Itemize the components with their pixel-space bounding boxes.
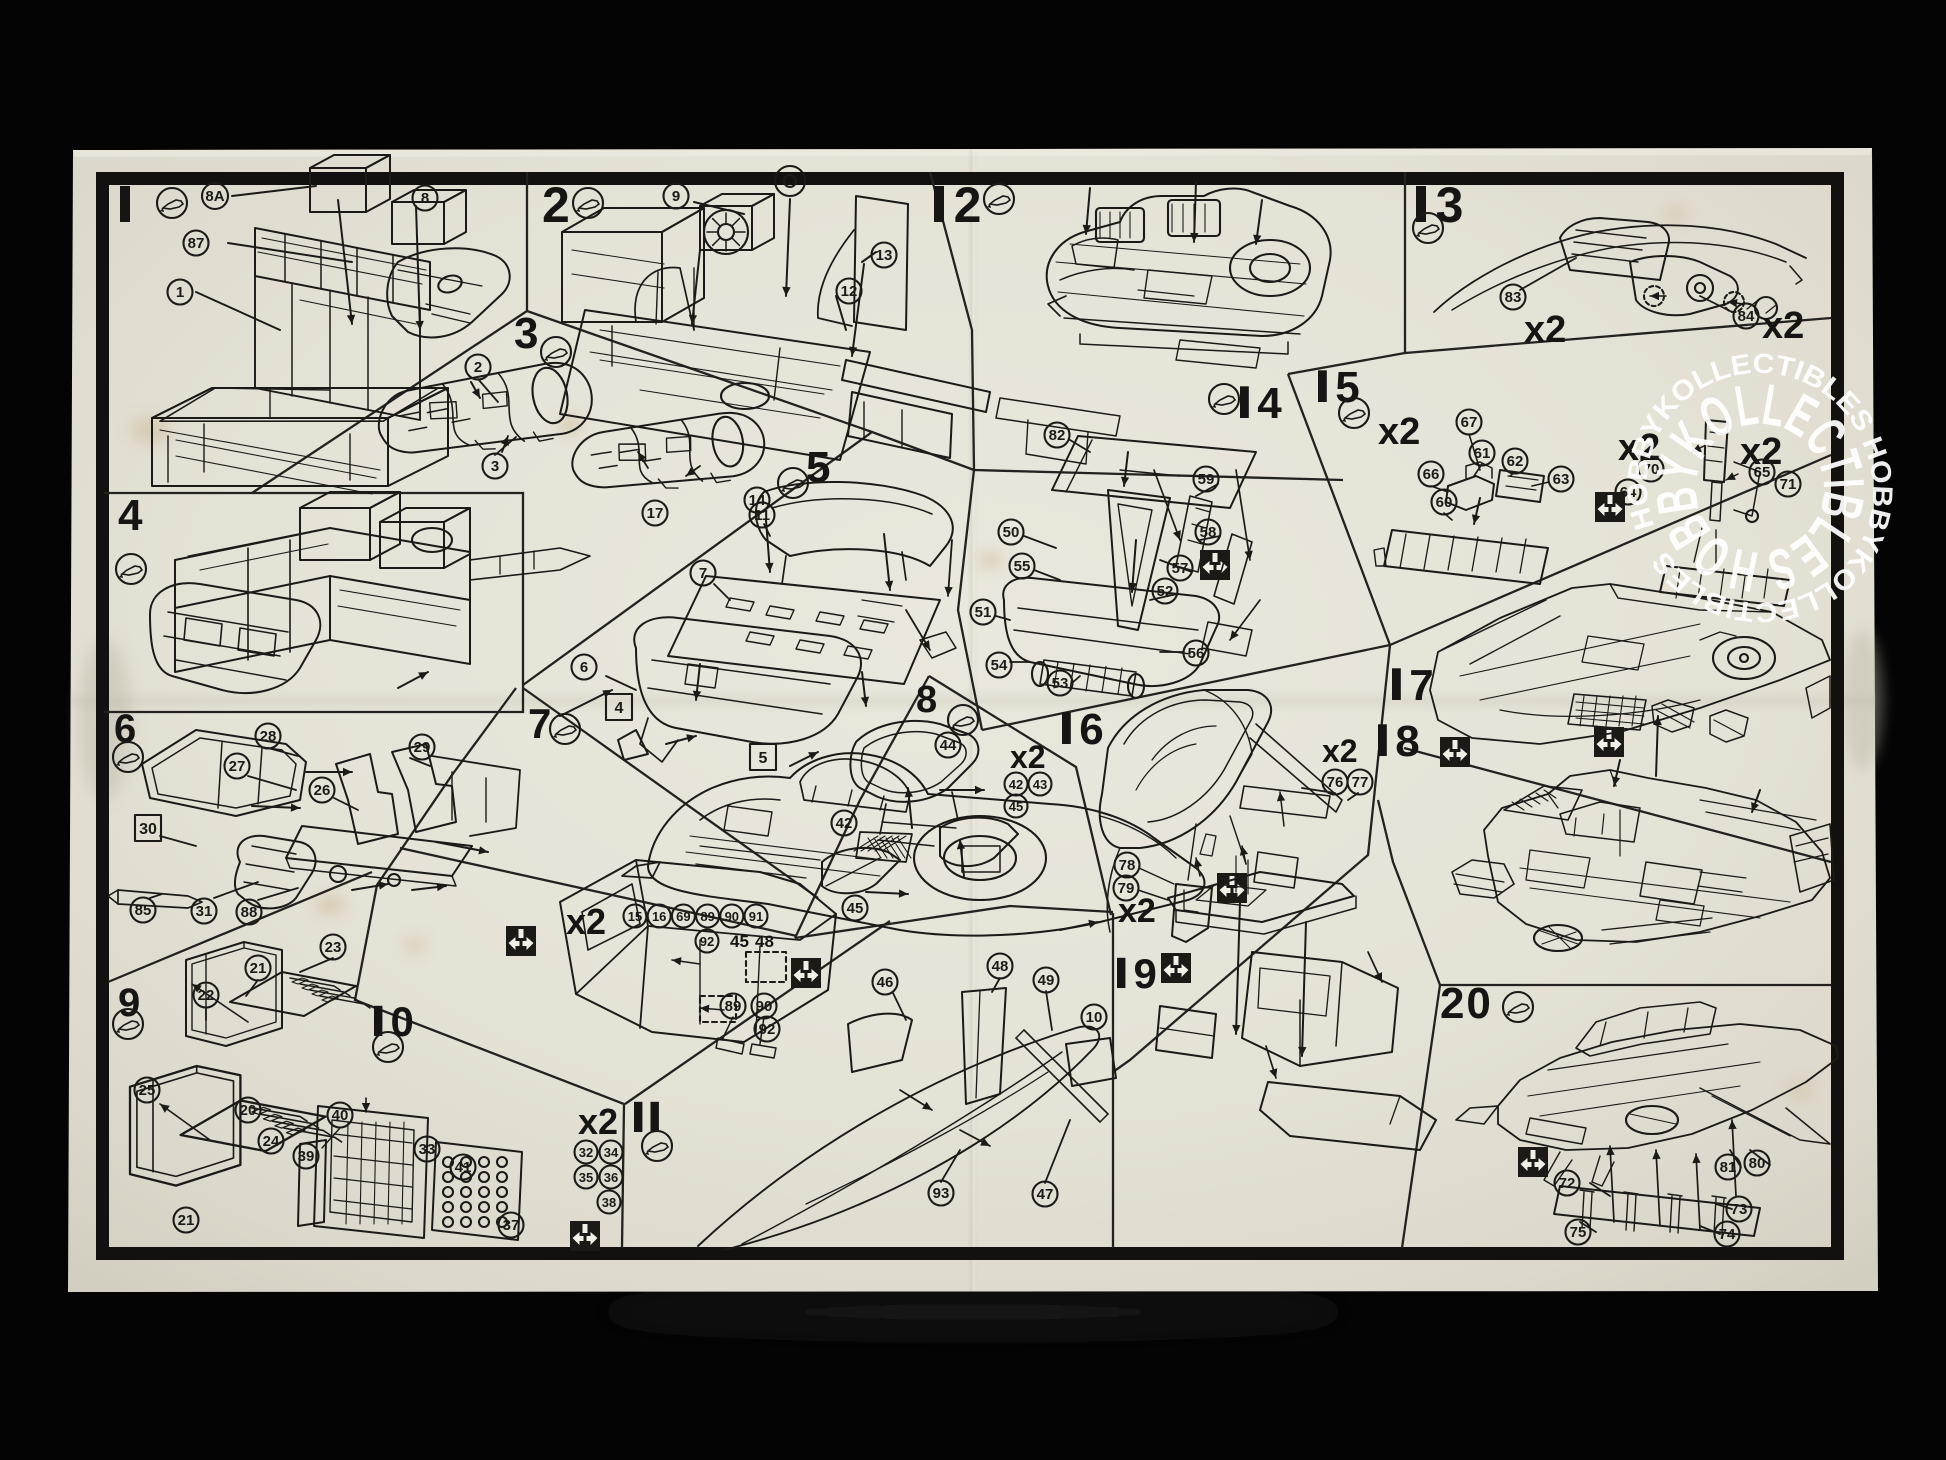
svg-text:89: 89: [700, 909, 714, 924]
svg-text:8: 8: [421, 190, 429, 207]
svg-text:2: 2: [542, 177, 569, 233]
svg-text:1: 1: [176, 284, 184, 301]
svg-text:7: 7: [1409, 661, 1432, 710]
svg-text:89: 89: [725, 998, 742, 1015]
svg-text:49: 49: [1038, 972, 1055, 989]
svg-text:28: 28: [260, 728, 277, 745]
svg-text:71: 71: [1780, 476, 1797, 493]
svg-text:65: 65: [1754, 464, 1771, 481]
svg-text:59: 59: [1198, 471, 1215, 488]
svg-text:34: 34: [604, 1145, 619, 1160]
svg-text:54: 54: [991, 657, 1008, 674]
svg-text:2: 2: [1440, 979, 1463, 1028]
svg-text:x2: x2: [1524, 309, 1566, 351]
svg-text:72: 72: [1559, 1175, 1576, 1192]
svg-text:9: 9: [672, 188, 680, 205]
svg-text:31: 31: [196, 903, 213, 920]
svg-text:8: 8: [916, 679, 936, 721]
svg-text:5: 5: [806, 443, 830, 492]
svg-text:43: 43: [1033, 777, 1047, 792]
svg-text:25: 25: [139, 1082, 156, 1099]
svg-text:42: 42: [836, 815, 853, 832]
svg-text:4: 4: [615, 700, 624, 717]
svg-text:91: 91: [749, 909, 763, 924]
svg-text:x2: x2: [578, 1101, 618, 1142]
svg-text:78: 78: [1119, 857, 1136, 874]
svg-text:7: 7: [528, 700, 550, 747]
svg-text:32: 32: [579, 1145, 593, 1160]
svg-text:37: 37: [503, 1217, 520, 1234]
svg-text:63: 63: [1553, 471, 1570, 488]
svg-text:21: 21: [250, 960, 267, 977]
svg-text:46: 46: [877, 974, 894, 991]
svg-text:13: 13: [876, 247, 893, 264]
svg-text:3: 3: [491, 458, 499, 475]
svg-text:90: 90: [725, 909, 739, 924]
svg-text:58: 58: [1200, 524, 1217, 541]
svg-text:4: 4: [1257, 379, 1282, 428]
svg-text:40: 40: [332, 1107, 349, 1124]
svg-text:3: 3: [1436, 177, 1463, 233]
svg-text:9: 9: [118, 981, 139, 1025]
svg-text:38: 38: [602, 1195, 616, 1210]
svg-text:x2: x2: [1118, 892, 1156, 930]
svg-text:4: 4: [118, 491, 143, 540]
svg-text:62: 62: [1507, 453, 1524, 470]
svg-text:6: 6: [114, 707, 135, 751]
svg-text:56: 56: [1188, 645, 1205, 662]
svg-text:39: 39: [298, 1148, 315, 1165]
svg-text:10: 10: [1086, 1009, 1103, 1026]
svg-text:81: 81: [1720, 1159, 1737, 1176]
svg-text:53: 53: [1052, 675, 1069, 692]
svg-text:73: 73: [1731, 1201, 1748, 1218]
svg-text:48: 48: [755, 932, 774, 951]
svg-text:3: 3: [514, 309, 537, 358]
svg-text:93: 93: [933, 1185, 950, 1202]
svg-text:22: 22: [198, 987, 215, 1004]
svg-text:20: 20: [240, 1102, 257, 1119]
svg-text:92: 92: [759, 1021, 776, 1038]
svg-text:76: 76: [1327, 774, 1344, 791]
svg-text:23: 23: [325, 939, 342, 956]
svg-text:42: 42: [1009, 777, 1023, 792]
svg-text:x2: x2: [1322, 733, 1358, 769]
svg-text:52: 52: [1157, 583, 1174, 600]
svg-text:8A: 8A: [205, 188, 224, 205]
svg-text:69: 69: [676, 909, 690, 924]
svg-text:2: 2: [474, 359, 482, 376]
svg-text:6: 6: [580, 659, 588, 676]
svg-text:47: 47: [1037, 1186, 1054, 1203]
svg-text:36: 36: [604, 1170, 618, 1185]
svg-text:33: 33: [419, 1141, 436, 1158]
svg-text:26: 26: [314, 782, 331, 799]
svg-text:41: 41: [455, 1159, 472, 1176]
svg-text:0: 0: [391, 998, 413, 1045]
svg-text:77: 77: [1352, 774, 1369, 791]
svg-text:27: 27: [229, 758, 246, 775]
svg-text:90: 90: [756, 998, 773, 1015]
svg-text:61: 61: [1474, 445, 1491, 462]
svg-text:35: 35: [579, 1170, 593, 1185]
svg-text:16: 16: [652, 909, 666, 924]
svg-text:9: 9: [1134, 950, 1156, 997]
svg-text:30: 30: [139, 821, 157, 838]
svg-text:11: 11: [754, 507, 770, 524]
svg-text:24: 24: [263, 1133, 280, 1150]
svg-text:92: 92: [700, 934, 714, 949]
svg-text:6: 6: [1079, 705, 1102, 754]
svg-text:87: 87: [188, 235, 205, 252]
svg-text:5: 5: [1335, 363, 1359, 412]
svg-text:x2: x2: [1762, 305, 1804, 347]
svg-text:51: 51: [975, 604, 992, 621]
svg-text:45: 45: [1009, 799, 1023, 814]
svg-text:83: 83: [1505, 289, 1522, 306]
svg-text:2: 2: [954, 177, 981, 233]
svg-text:75: 75: [1570, 1224, 1587, 1241]
svg-text:7: 7: [699, 565, 707, 582]
svg-text:29: 29: [414, 739, 431, 756]
svg-text:84: 84: [1738, 308, 1755, 325]
svg-text:21: 21: [178, 1212, 195, 1229]
svg-text:85: 85: [135, 902, 152, 919]
svg-text:8: 8: [1395, 717, 1419, 766]
svg-text:x2: x2: [1010, 739, 1046, 775]
svg-text:88: 88: [241, 904, 258, 921]
svg-text:48: 48: [992, 958, 1009, 975]
svg-text:44: 44: [940, 737, 957, 754]
svg-text:66: 66: [1423, 466, 1440, 483]
svg-text:60: 60: [1436, 494, 1453, 511]
svg-text:57: 57: [1172, 560, 1189, 577]
svg-text:5: 5: [759, 750, 768, 767]
svg-text:74: 74: [1719, 1226, 1736, 1243]
svg-text:67: 67: [1461, 414, 1478, 431]
svg-text:50: 50: [1003, 524, 1020, 541]
svg-text:12: 12: [841, 283, 858, 300]
svg-text:80: 80: [1749, 1155, 1766, 1172]
svg-text:55: 55: [1014, 558, 1031, 575]
svg-text:17: 17: [647, 505, 664, 522]
svg-text:0: 0: [1466, 979, 1489, 1028]
svg-text:82: 82: [1049, 427, 1066, 444]
svg-text:45: 45: [847, 900, 864, 917]
svg-text:x2: x2: [1378, 411, 1420, 453]
